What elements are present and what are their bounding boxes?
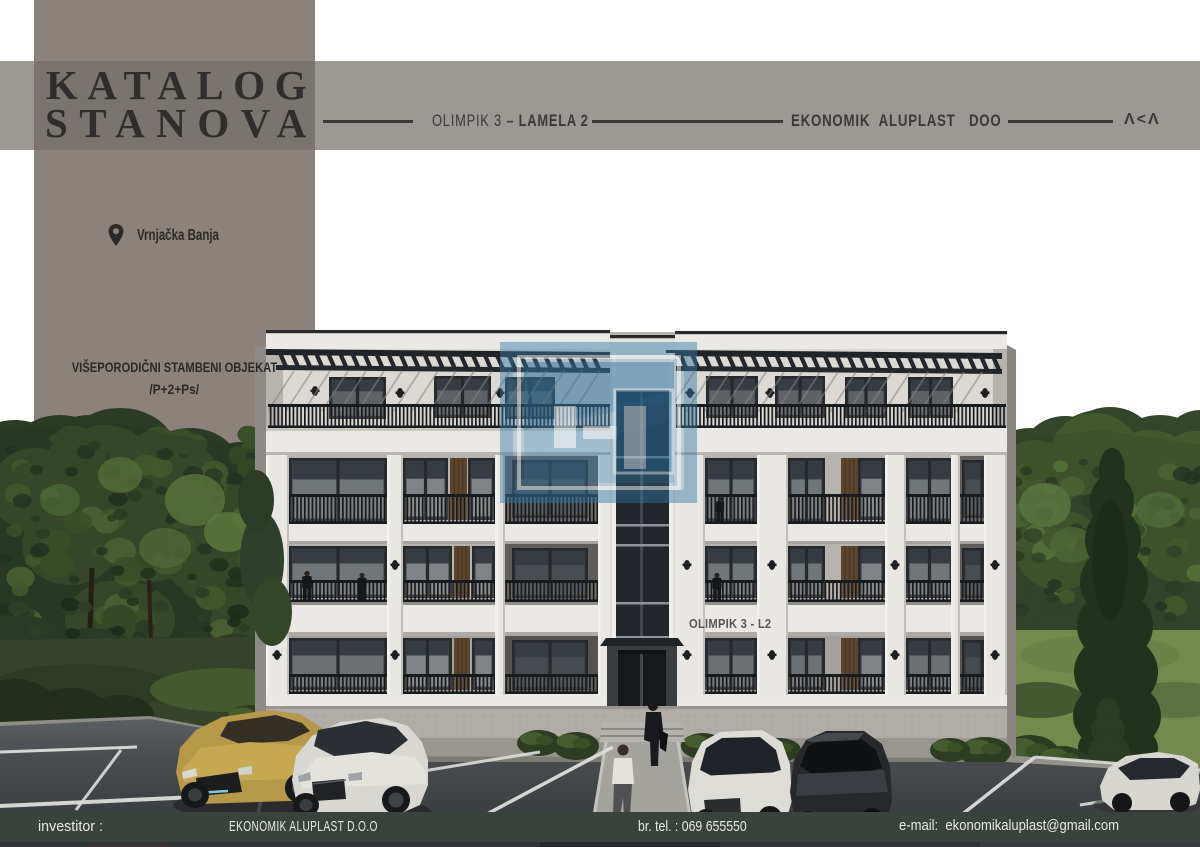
svg-text:OLIMPIK 3 - L2: OLIMPIK 3 - L2 <box>689 616 771 631</box>
